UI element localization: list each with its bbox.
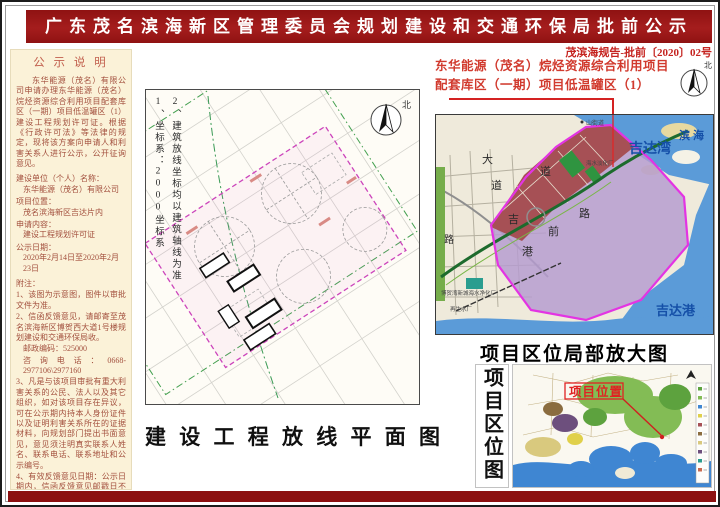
- notice-column: 公 示 说 明 东华能源（茂名）有限公司申请办理东华能源（茂名）烷烃资源综合利用…: [10, 49, 132, 490]
- phone-number: 咨询电话：0668-2977106\2977160: [16, 356, 126, 377]
- road-char: 大: [482, 152, 493, 166]
- project-title-line-2: 配套库区（一期）项目低温罐区（1）: [435, 76, 681, 95]
- announcement-poster: 广东茂名滨海新区管理委员会规划建设和交通环保局批前公示 茂滨海规告-批前〔202…: [0, 0, 720, 507]
- map-north-arrow-icon: 北: [678, 58, 714, 100]
- title-leader-line-v: [612, 98, 614, 115]
- plan-note-1: 1、坐标系：2000坐标系: [151, 97, 165, 397]
- field-label: 建设单位（个人）名称：: [16, 174, 126, 184]
- enlarged-location-map: 吉达湾 滨 海 吉达港 大 道 道 路 吉 前 港 路 山街道 海水淡化厂 博贺…: [435, 114, 714, 335]
- road-char: 路: [579, 207, 590, 220]
- enlarged-map-drawing: 吉达湾 滨 海 吉达港 大 道 道 路 吉 前 港 路 山街道 海水淡化厂 博贺…: [436, 115, 713, 334]
- project-title-line-1: 东华能源（茂名）烷烃资源综合利用项目: [435, 57, 681, 76]
- small-label: 海水淡化厂: [586, 159, 614, 167]
- road-char: 港: [522, 245, 533, 258]
- notes-heading: 附注：: [16, 279, 126, 289]
- field-label: 项目位置：: [16, 197, 126, 207]
- project-title: 东华能源（茂名）烷烃资源综合利用项目 配套库区（一期）项目低温罐区（1）: [435, 57, 681, 95]
- map-north-label: 北: [704, 61, 712, 70]
- field-location: 项目位置： 茂名滨海新区吉达片内: [16, 197, 126, 218]
- postal-code: 邮政编码：525000: [16, 344, 126, 354]
- port-label: 吉达港: [656, 303, 696, 318]
- banner-title: 广东茂名滨海新区管理委员会规划建设和交通环保局批前公示: [26, 10, 712, 43]
- note-2: 2、信函反馈意见，请邮寄至茂名滨海新区博贺西大道1号楼规划建设和交通环保局收。: [16, 312, 126, 343]
- road-char: 路: [444, 233, 454, 246]
- note-3: 3、凡是与该项目审批有重大利害关系的公民、法人以及其它组织，如对该项目存在异议，…: [16, 377, 126, 471]
- small-label: 再生水厂: [450, 305, 473, 313]
- field-label: 申请内容：: [16, 220, 126, 230]
- road-char: 道: [491, 178, 502, 192]
- note-1: 1、该图为示意图，图件以审批文件为准。: [16, 290, 126, 311]
- field-value: 东华能源（茂名）有限公司: [16, 185, 126, 195]
- project-marker-label: 项目位置: [569, 384, 623, 399]
- note-4: 4、有效反馈意见日期：公示日期内，信函反馈意见邮戳日不得超过公示日期最后一天的2…: [16, 472, 126, 490]
- site-plan-drawing: 北: [146, 90, 419, 404]
- plan-note-2: 2、建筑放线坐标均以建筑轴线为准: [168, 97, 182, 397]
- field-label: 公示日期：: [16, 243, 126, 253]
- field-value: 建设工程规划许可证: [16, 230, 126, 240]
- road-char: 道: [540, 164, 551, 178]
- region-map: 项目位置: [512, 364, 712, 488]
- notice-title: 公 示 说 明: [16, 56, 126, 71]
- plan-north-label: 北: [402, 100, 411, 110]
- coast-label: 滨 海: [679, 128, 704, 142]
- field-application: 申请内容： 建设工程规划许可证: [16, 220, 126, 241]
- bay-label: 吉达湾: [629, 140, 671, 156]
- field-dates: 公示日期： 2020年2月14日至2020年2月23日: [16, 243, 126, 274]
- enlarged-map-caption: 项目区位局部放大图: [435, 339, 714, 366]
- region-map-caption-box: 项目区位图: [475, 364, 509, 488]
- footer-bar: [8, 491, 716, 502]
- small-label: 博贺湾新城海水净化厂: [441, 289, 497, 297]
- plan-caption: 建 设 工 程 放 线 平 面 图: [145, 421, 420, 451]
- field-value: 茂名滨海新区吉达片内: [16, 208, 126, 218]
- road-char: 前: [548, 224, 559, 238]
- field-applicant: 建设单位（个人）名称： 东华能源（茂名）有限公司: [16, 174, 126, 195]
- field-value: 2020年2月14日至2020年2月23日: [16, 253, 126, 274]
- site-plan-panel: 北 1、坐标系：2000坐标系 2、建筑放线坐标均以建筑轴线为准: [145, 89, 420, 405]
- plan-notes: 1、坐标系：2000坐标系 2、建筑放线坐标均以建筑轴线为准: [151, 97, 185, 397]
- road-char: 吉: [508, 213, 519, 226]
- region-map-caption: 项目区位图: [478, 365, 507, 487]
- green-belt: [436, 167, 445, 301]
- region-map-drawing: 项目位置: [513, 365, 711, 487]
- small-label: 山街道: [586, 119, 604, 127]
- map-legend: [696, 383, 709, 483]
- notice-intro: 东华能源（茂名）有限公司申请办理东华能源（茂名）烷烃资源综合利用项目配套库区（一…: [16, 76, 126, 170]
- title-leader-line: [449, 98, 613, 100]
